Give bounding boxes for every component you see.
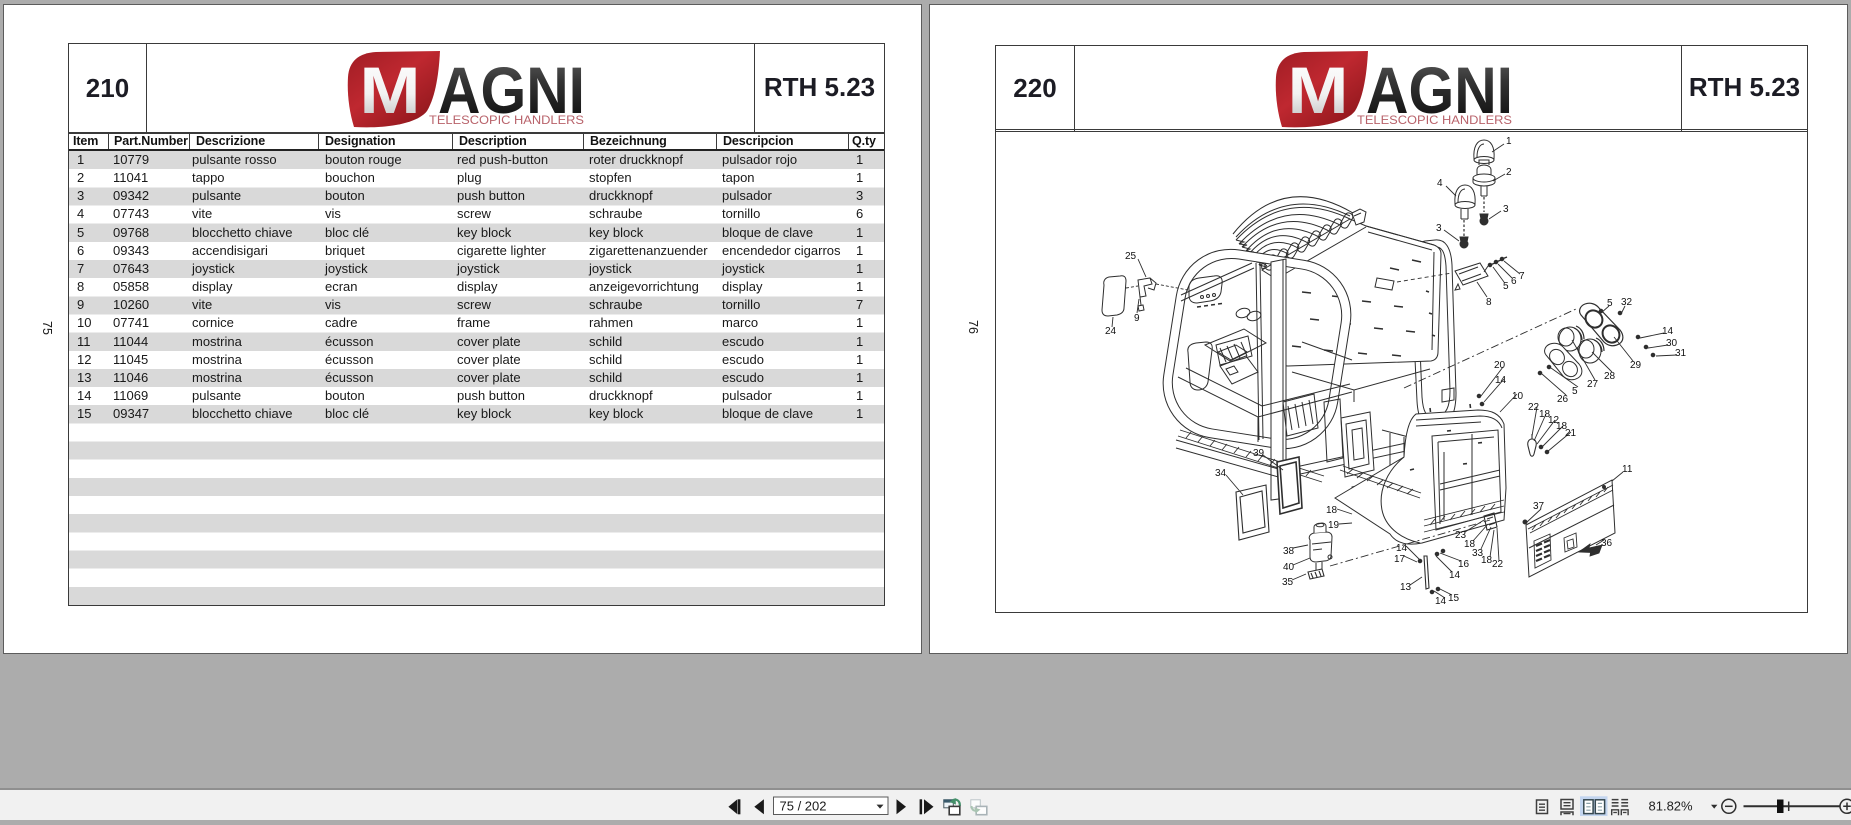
svg-text:3: 3 [1436, 223, 1442, 234]
svg-text:22: 22 [1528, 402, 1540, 413]
svg-text:M: M [360, 53, 421, 127]
svg-text:32: 32 [1621, 297, 1633, 308]
svg-text:34: 34 [1215, 468, 1227, 479]
svg-text:20: 20 [1494, 360, 1506, 371]
svg-text:21: 21 [1565, 428, 1577, 439]
svg-text:16: 16 [1458, 559, 1470, 570]
svg-text:8: 8 [1486, 297, 1492, 308]
svg-text:TELESCOPIC HANDLERS: TELESCOPIC HANDLERS [1357, 113, 1512, 127]
svg-text:15: 15 [1448, 593, 1460, 604]
svg-text:27: 27 [1587, 379, 1599, 390]
svg-text:81.82%: 81.82% [1649, 799, 1694, 814]
svg-text:28: 28 [1604, 371, 1616, 382]
svg-text:14: 14 [1662, 326, 1674, 337]
svg-text:5: 5 [1572, 386, 1578, 397]
svg-text:10: 10 [1512, 391, 1524, 402]
svg-text:M: M [1288, 53, 1349, 127]
svg-text:36: 36 [1601, 538, 1613, 549]
svg-text:19: 19 [1328, 520, 1340, 531]
svg-text:18: 18 [1481, 555, 1493, 566]
svg-text:4: 4 [1437, 178, 1443, 189]
svg-text:25: 25 [1125, 251, 1137, 262]
svg-text:38: 38 [1283, 546, 1295, 557]
svg-text:37: 37 [1533, 501, 1545, 512]
svg-text:39: 39 [1253, 448, 1265, 459]
svg-text:18: 18 [1326, 505, 1338, 516]
svg-text:22: 22 [1492, 559, 1504, 570]
svg-text:5: 5 [1607, 298, 1613, 309]
svg-text:17: 17 [1394, 554, 1406, 565]
svg-text:14: 14 [1495, 375, 1507, 386]
svg-text:11: 11 [1622, 464, 1633, 475]
svg-text:14: 14 [1435, 596, 1447, 607]
svg-text:5: 5 [1503, 281, 1509, 292]
svg-text:35: 35 [1282, 577, 1294, 588]
svg-text:24: 24 [1105, 326, 1117, 337]
svg-text:26: 26 [1557, 394, 1569, 405]
svg-text:13: 13 [1400, 582, 1412, 593]
svg-text:29: 29 [1630, 360, 1642, 371]
svg-text:1: 1 [1506, 136, 1512, 147]
svg-text:7: 7 [1519, 271, 1525, 282]
svg-text:40: 40 [1283, 562, 1295, 573]
svg-text:75 / 202: 75 / 202 [780, 799, 827, 814]
svg-text:6: 6 [1511, 276, 1517, 287]
svg-text:14: 14 [1449, 570, 1461, 581]
svg-text:3: 3 [1503, 204, 1509, 215]
svg-text:9: 9 [1134, 313, 1140, 324]
svg-text:TELESCOPIC HANDLERS: TELESCOPIC HANDLERS [429, 113, 584, 127]
svg-text:31: 31 [1675, 348, 1687, 359]
svg-text:14: 14 [1396, 543, 1408, 554]
svg-text:2: 2 [1506, 167, 1512, 178]
